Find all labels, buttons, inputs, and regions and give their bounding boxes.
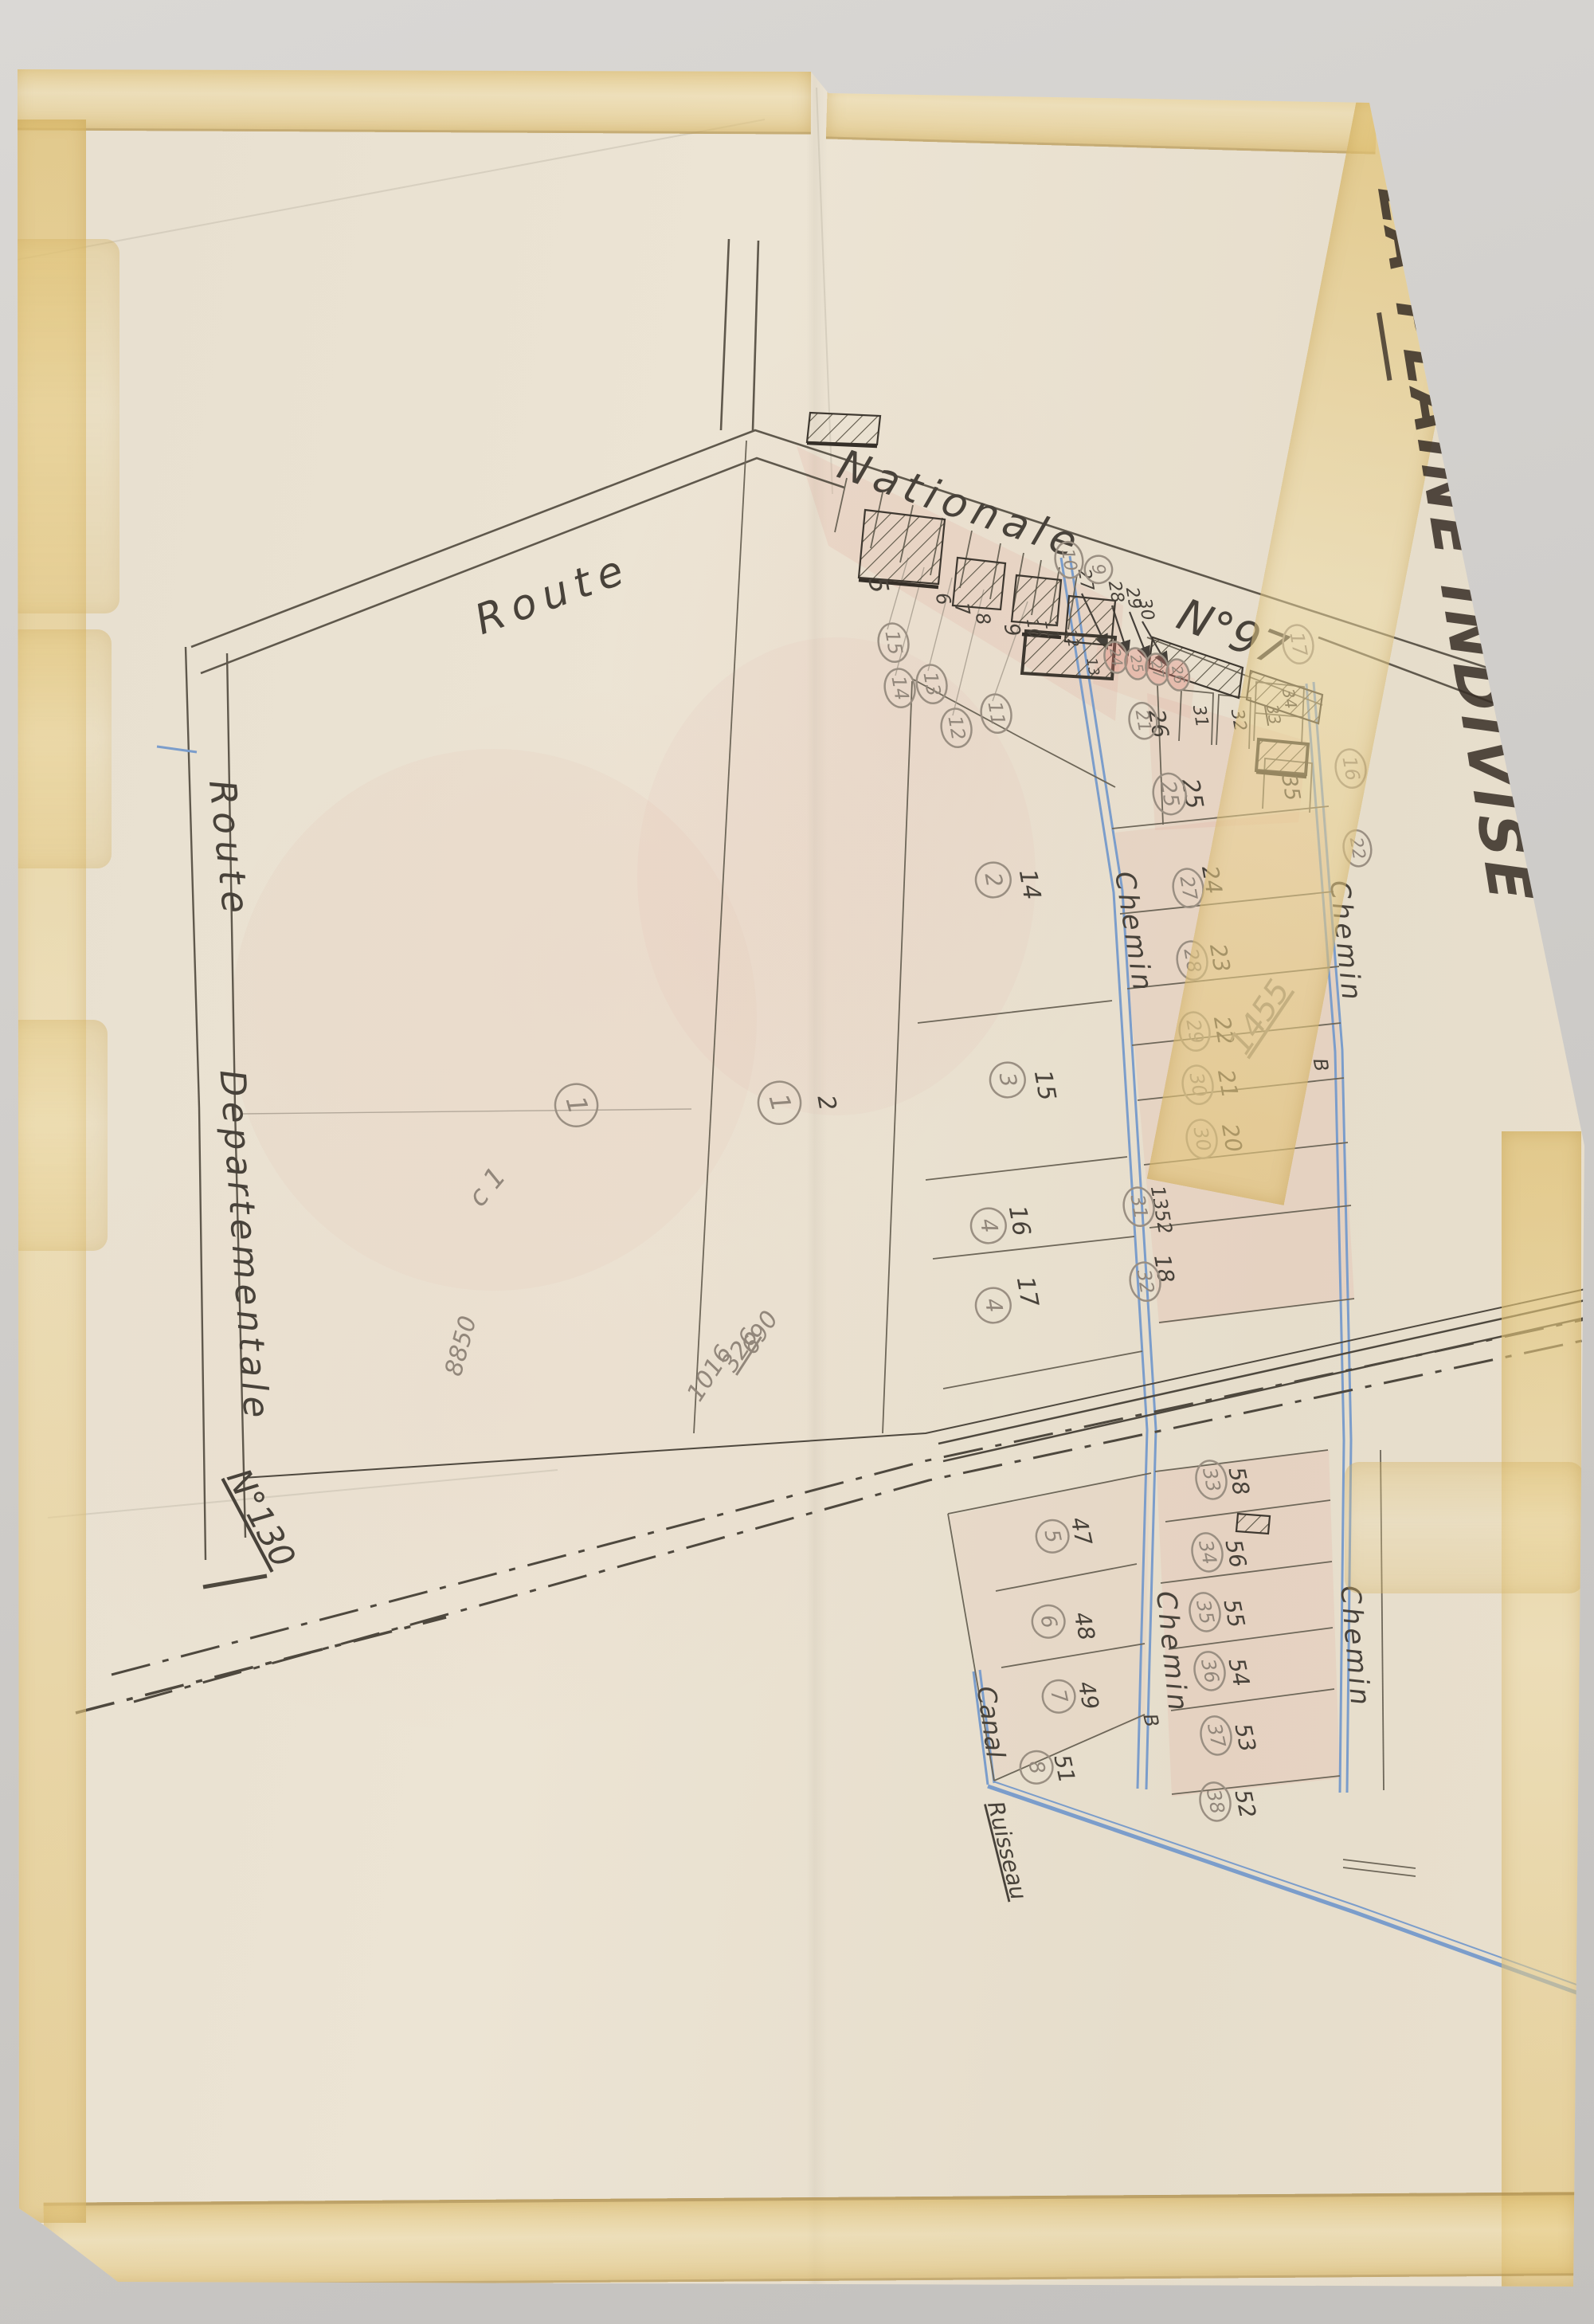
parcel-31: 31 [1189, 703, 1212, 729]
circled-14-text: 14 [887, 674, 913, 702]
parcel-17-text: 17 [1011, 1275, 1044, 1310]
circled-4b-text: 4 [980, 1296, 1008, 1315]
circled-4a-text: 4 [975, 1217, 1004, 1235]
circled-32-text: 32 [1132, 1268, 1158, 1295]
circled-3: 3 [988, 1060, 1028, 1100]
photo-of-cadastral-plan: RouteNationaleN°97RouteDepartementaleN°1… [0, 0, 1594, 2324]
pencil-sum-1016-text: 1016 [682, 1340, 738, 1406]
parcel-15: 15 [1028, 1068, 1061, 1103]
label-ruisseau-text: Ruisseau [982, 1798, 1032, 1903]
circled-25-text: 25 [1155, 779, 1183, 809]
parcel-15-text: 15 [1028, 1068, 1061, 1103]
parcel-11-text: 11 [1041, 618, 1063, 641]
circled-12-text: 12 [943, 714, 969, 742]
tape-left-patch-1 [0, 239, 119, 613]
pink-circled-25-text: 25 [1126, 653, 1146, 674]
parcel-11: 11 [1041, 618, 1063, 641]
pencil-sum-1016: 1016 [682, 1340, 738, 1406]
tracing-paper-sheet: RouteNationaleN°97RouteDepartementaleN°1… [0, 0, 1594, 2324]
parcel-16-text: 16 [1003, 1204, 1036, 1239]
parcel-52-text: 52 [1229, 1787, 1261, 1820]
circled-27-text: 27 [1175, 874, 1201, 903]
parcel-14: 14 [1013, 868, 1046, 903]
circled-13-text: 13 [918, 670, 945, 698]
tape-left-patch-3 [0, 1020, 108, 1251]
label-route-left: Route [201, 778, 258, 921]
circled-4b: 4 [973, 1285, 1014, 1326]
tape-bottom [44, 2192, 1578, 2286]
tape-top-right [826, 65, 1377, 154]
parcel-10-text: 10 [1023, 617, 1045, 640]
parcel-12-text: 12 [1062, 628, 1082, 649]
parcel-10: 10 [1023, 617, 1045, 640]
tape-left-patch-2 [0, 629, 112, 868]
arrow-label-30-text: 30 [1134, 597, 1157, 622]
circled-3-text: 3 [994, 1071, 1023, 1089]
circled-9-text: 9 [1087, 562, 1109, 577]
label-n130: N°130 [219, 1462, 304, 1574]
tape-right-vertical [1502, 1131, 1581, 2287]
circled-38-text: 38 [1202, 1787, 1229, 1816]
circled-31-text: 31 [1126, 1193, 1152, 1221]
label-ruisseau: Ruisseau [982, 1798, 1032, 1903]
circled-10-text: 10 [1057, 547, 1080, 573]
parcel-52: 52 [1229, 1787, 1261, 1820]
parcel-12: 12 [1062, 628, 1082, 649]
circled-4a: 4 [969, 1205, 1009, 1246]
pink-circled-27-text: 27 [1147, 659, 1167, 680]
circled-11-text: 11 [983, 700, 1009, 727]
parcel-16: 16 [1003, 1204, 1036, 1239]
label-route-left-text: Route [201, 778, 258, 921]
tape-right-band [1345, 1462, 1584, 1593]
pink-circled-24-text: 24 [1106, 647, 1126, 668]
parcel-14-text: 14 [1013, 868, 1046, 903]
tape-top-left [14, 61, 811, 134]
circled-21-text: 21 [1131, 708, 1154, 734]
parcel-13: 13 [1083, 656, 1102, 677]
pink-circled-26-text: 26 [1168, 664, 1188, 685]
parcel-17: 17 [1011, 1275, 1044, 1310]
arrow-label-30: 30 [1134, 597, 1157, 622]
parcel-31-text: 31 [1189, 703, 1212, 729]
circled-15-text: 15 [880, 629, 907, 656]
label-n130-text: N°130 [219, 1462, 304, 1574]
parcel-13-text: 13 [1083, 656, 1102, 677]
pencil-note-8850: 8850 [440, 1313, 483, 1379]
pencil-note-8850-text: 8850 [440, 1313, 483, 1379]
